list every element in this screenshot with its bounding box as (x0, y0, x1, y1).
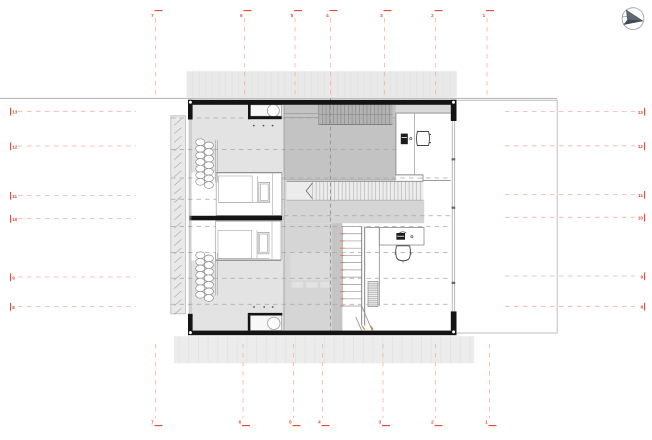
svg-text:2: 2 (431, 13, 434, 18)
svg-text:7: 7 (151, 13, 154, 18)
svg-text:1: 1 (485, 420, 488, 425)
svg-text:8: 8 (640, 305, 643, 310)
svg-text:5: 5 (291, 13, 294, 18)
svg-text:3: 3 (379, 420, 382, 425)
svg-text:1: 1 (483, 13, 486, 18)
svg-text:9: 9 (12, 275, 15, 280)
svg-text:8: 8 (12, 305, 15, 310)
svg-text:4: 4 (326, 13, 329, 18)
svg-text:4: 4 (318, 420, 321, 425)
svg-text:6: 6 (240, 13, 243, 18)
svg-text:10: 10 (12, 217, 18, 222)
svg-text:13: 13 (12, 110, 18, 115)
svg-text:5: 5 (289, 420, 292, 425)
svg-text:12: 12 (638, 144, 644, 149)
svg-text:9: 9 (640, 274, 643, 279)
svg-text:13: 13 (638, 110, 644, 115)
svg-text:11: 11 (638, 193, 643, 198)
svg-text:10: 10 (638, 216, 644, 221)
svg-text:7: 7 (151, 420, 154, 425)
svg-text:12: 12 (12, 144, 18, 149)
svg-text:3: 3 (380, 13, 383, 18)
svg-text:6: 6 (239, 420, 242, 425)
svg-text:2: 2 (431, 420, 434, 425)
svg-text:11: 11 (12, 194, 17, 199)
